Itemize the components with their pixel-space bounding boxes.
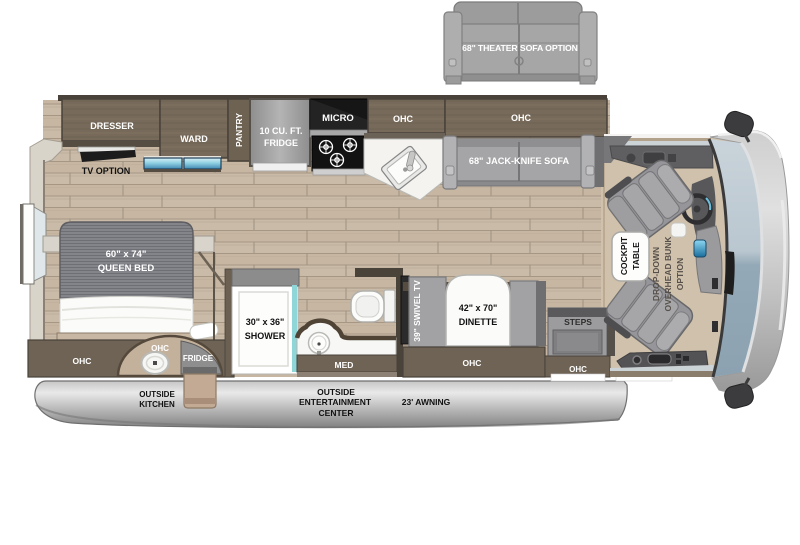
svg-text:FRIDGE: FRIDGE — [264, 138, 298, 148]
svg-text:OUTSIDE: OUTSIDE — [139, 390, 175, 399]
svg-text:DINETTE: DINETTE — [459, 317, 498, 327]
svg-text:OHC: OHC — [569, 365, 587, 374]
svg-text:MED: MED — [335, 360, 354, 370]
svg-text:23' AWNING: 23' AWNING — [402, 397, 451, 407]
svg-text:PANTRY: PANTRY — [234, 113, 244, 147]
svg-text:CENTER: CENTER — [319, 408, 354, 418]
svg-text:SHOWER: SHOWER — [245, 331, 286, 341]
svg-text:DROP-DOWN: DROP-DOWN — [651, 247, 661, 301]
svg-text:STEPS: STEPS — [564, 317, 592, 327]
svg-text:30" x 36": 30" x 36" — [246, 317, 285, 327]
svg-text:68" JACK-KNIFE SOFA: 68" JACK-KNIFE SOFA — [469, 156, 570, 166]
svg-text:10 CU. FT.: 10 CU. FT. — [259, 126, 302, 136]
svg-text:QUEEN BED: QUEEN BED — [98, 263, 155, 274]
svg-text:60" x 74": 60" x 74" — [106, 249, 147, 260]
svg-text:42" x 70": 42" x 70" — [459, 303, 498, 313]
svg-text:OHC: OHC — [393, 114, 414, 124]
svg-text:TV OPTION: TV OPTION — [82, 166, 131, 176]
svg-text:OPTION: OPTION — [675, 258, 685, 291]
svg-text:OHC: OHC — [73, 356, 92, 366]
svg-text:OVERHEAD BUNK: OVERHEAD BUNK — [663, 236, 673, 312]
svg-text:DRESSER: DRESSER — [90, 121, 134, 131]
svg-text:KITCHEN: KITCHEN — [139, 400, 175, 409]
svg-text:WARD: WARD — [180, 134, 208, 144]
svg-text:FRIDGE: FRIDGE — [183, 354, 214, 363]
svg-text:MICRO: MICRO — [322, 113, 354, 124]
svg-text:TABLE: TABLE — [631, 242, 641, 270]
svg-text:68" THEATER SOFA OPTION: 68" THEATER SOFA OPTION — [462, 43, 578, 53]
svg-text:OHC: OHC — [511, 113, 532, 123]
svg-text:OUTSIDE: OUTSIDE — [317, 387, 355, 397]
svg-text:COCKPIT: COCKPIT — [619, 236, 629, 275]
svg-text:OHC: OHC — [463, 358, 482, 368]
svg-text:ENTERTAINMENT: ENTERTAINMENT — [299, 397, 372, 407]
svg-text:39" SWIVEL TV: 39" SWIVEL TV — [412, 280, 422, 342]
